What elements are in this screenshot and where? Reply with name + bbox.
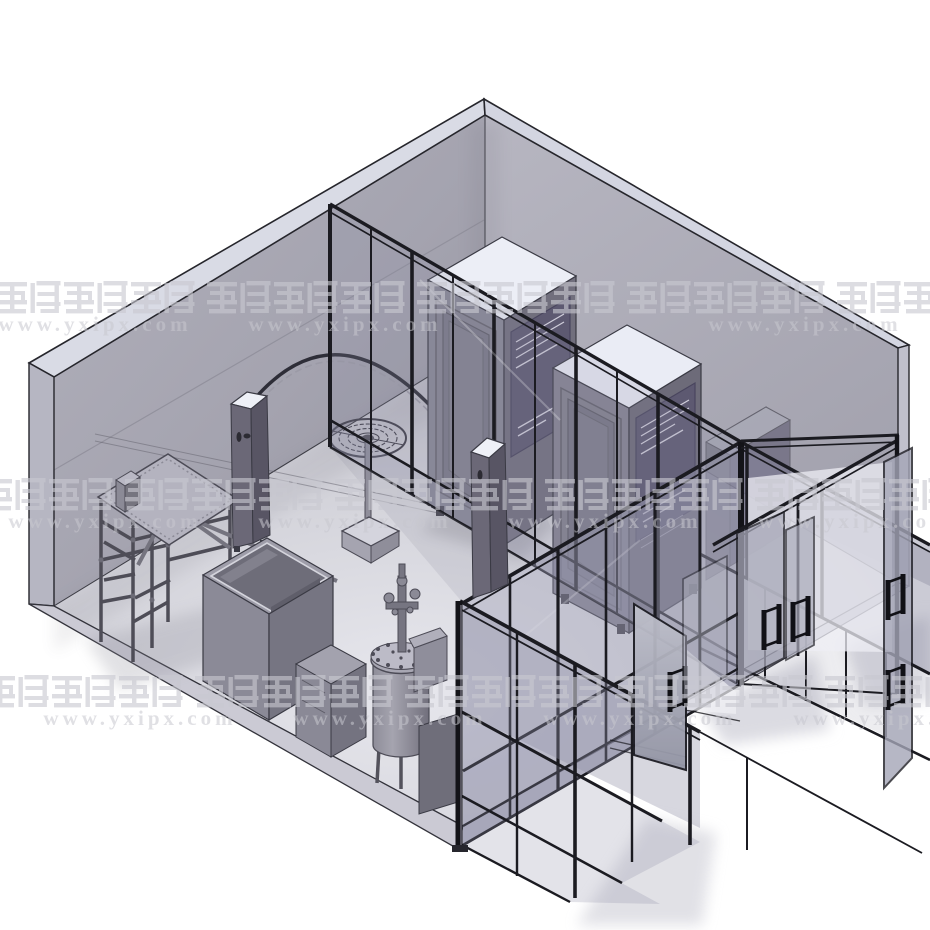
svg-text:www.yxipx.com: www.yxipx.com bbox=[758, 509, 930, 533]
svg-text:www.yxipx.com: www.yxipx.com bbox=[8, 509, 201, 533]
svg-text:www.yxipx.com: www.yxipx.com bbox=[258, 509, 451, 533]
svg-text:www.yxipx.com: www.yxipx.com bbox=[508, 509, 701, 533]
svg-text:www.yxipx.com: www.yxipx.com bbox=[43, 706, 236, 730]
svg-text:www.yxipx.com: www.yxipx.com bbox=[543, 706, 736, 730]
svg-text:www.yxipx.com: www.yxipx.com bbox=[248, 312, 441, 336]
svg-text:www.yxipx.com: www.yxipx.com bbox=[0, 312, 192, 336]
svg-text:www.yxipx.com: www.yxipx.com bbox=[793, 706, 930, 730]
svg-text:www.yxipx.com: www.yxipx.com bbox=[708, 312, 901, 336]
svg-text:www.yxipx.com: www.yxipx.com bbox=[293, 706, 486, 730]
